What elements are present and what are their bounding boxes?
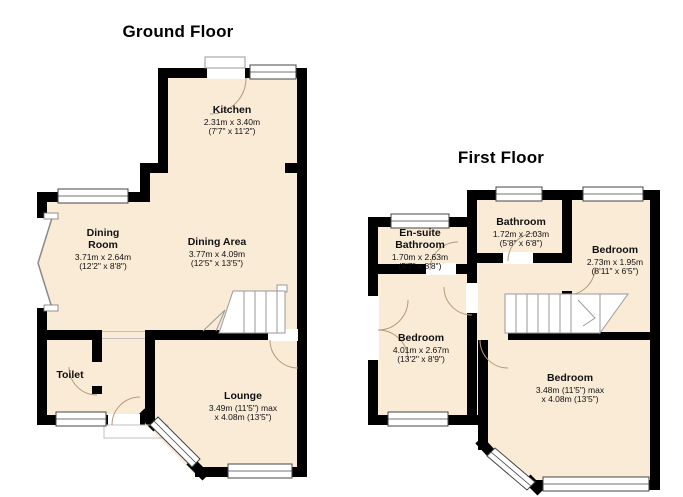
dining-room-window <box>58 189 128 203</box>
room-name: Dining Area <box>188 237 247 249</box>
dining-area-label: Dining Area 3.77m x 4.09m (12'5" x 13'5"… <box>162 232 272 269</box>
room-dims-imperial: (8'11" x 6'5") <box>560 267 670 277</box>
lounge-window <box>228 464 292 478</box>
bathroom-window <box>496 187 542 201</box>
toilet-label: Toilet <box>38 365 102 383</box>
kitchen-label: Kitchen 2.31m x 3.40m (7'7" x 11'2") <box>167 100 297 137</box>
bedroom-main-window <box>543 477 649 491</box>
room-dims-imperial: (13'2" x 8'9") <box>366 355 476 365</box>
dining-room-label: Dining Room 3.71m x 2.64m (12'2" x 8'8") <box>48 228 158 272</box>
kitchen-door-leaf <box>205 57 245 68</box>
room-dims-imperial: (12'2" x 8'8") <box>48 262 158 272</box>
kitchen-window <box>250 65 296 79</box>
first-floor-title: First Floor <box>436 148 566 168</box>
room-name: Dining Room <box>73 228 133 252</box>
room-dims-imperial: x 4.08m (13'5") <box>168 413 318 423</box>
ensuite-window <box>391 214 449 228</box>
bedroom-mid-window <box>388 412 448 426</box>
room-name: En-suite Bathroom <box>390 228 450 252</box>
room-name: Lounge <box>224 391 262 403</box>
bedroom-small-window <box>583 187 643 201</box>
room-name: Bathroom <box>496 217 546 229</box>
ensuite-bathroom-label: En-suite Bathroom 1.70m x 2.63m (5'7" x … <box>365 228 475 272</box>
room-name: Toilet <box>56 370 83 382</box>
toilet-window <box>56 412 106 426</box>
room-name: Bedroom <box>398 333 444 345</box>
room-name: Bedroom <box>547 373 593 385</box>
room-dims-imperial: (5'7" x 8'8") <box>365 262 475 272</box>
room-dims-imperial: (7'7" x 11'2") <box>167 127 297 137</box>
room-name: Bedroom <box>592 245 638 257</box>
room-name: Kitchen <box>213 105 252 117</box>
bedroom-small-label: Bedroom 2.73m x 1.95m (8'11" x 6'5") <box>560 240 670 277</box>
bedroom-main-label: Bedroom 3.48m (11'5") max x 4.08m (13'5"… <box>495 368 645 405</box>
room-dims-imperial: x 4.08m (13'5") <box>495 395 645 405</box>
ground-floor-title: Ground Floor <box>108 22 248 42</box>
room-dims-imperial: (12'5" x 13'5") <box>162 259 272 269</box>
bedroom-mid-label: Bedroom 4.01m x 2.67m (13'2" x 8'9") <box>366 328 476 365</box>
lounge-label: Lounge 3.49m (11'5") max x 4.08m (13'5") <box>168 386 318 423</box>
